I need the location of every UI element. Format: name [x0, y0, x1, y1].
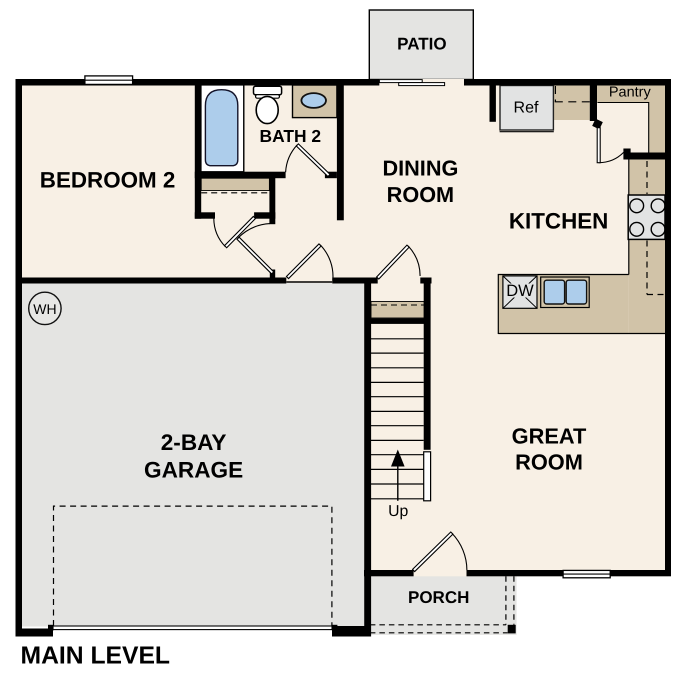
svg-text:Pantry: Pantry: [609, 84, 652, 100]
svg-text:DW: DW: [506, 282, 534, 300]
svg-text:2-BAY: 2-BAY: [161, 430, 227, 455]
svg-text:BEDROOM 2: BEDROOM 2: [40, 168, 176, 193]
svg-text:MAIN LEVEL: MAIN LEVEL: [21, 643, 171, 670]
svg-text:GREAT: GREAT: [512, 424, 587, 449]
svg-text:Ref: Ref: [514, 100, 539, 117]
svg-text:WH: WH: [33, 301, 56, 317]
svg-text:Up: Up: [388, 503, 408, 520]
svg-text:BATH 2: BATH 2: [260, 126, 322, 146]
svg-text:ROOM: ROOM: [515, 449, 583, 474]
svg-text:KITCHEN: KITCHEN: [509, 208, 609, 233]
svg-text:PATIO: PATIO: [397, 34, 446, 53]
svg-text:DINING: DINING: [382, 156, 458, 181]
svg-text:PORCH: PORCH: [408, 588, 469, 607]
svg-text:GARAGE: GARAGE: [144, 458, 243, 483]
svg-text:ROOM: ROOM: [387, 182, 454, 207]
